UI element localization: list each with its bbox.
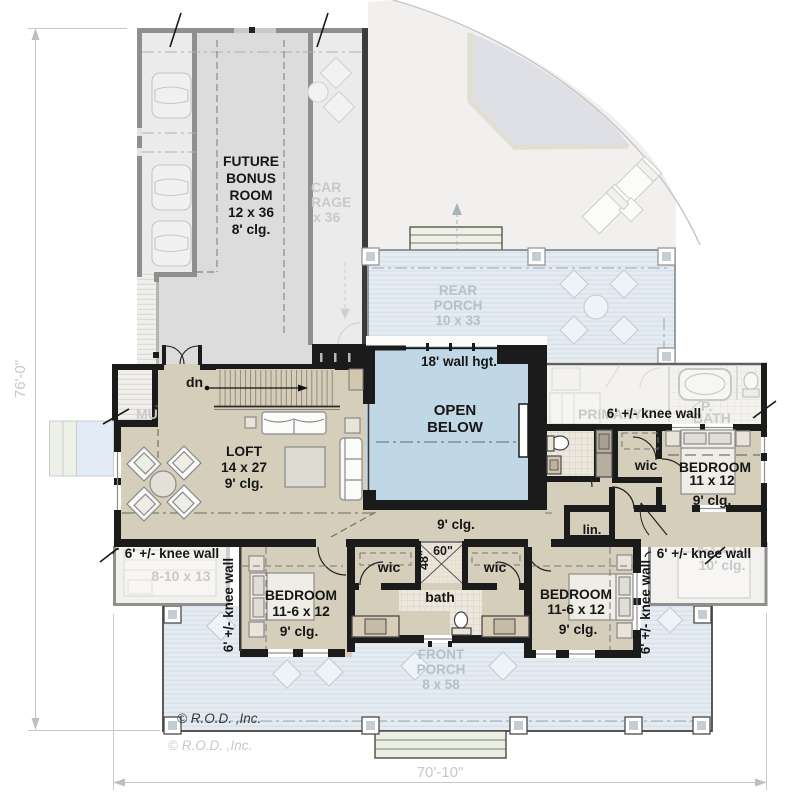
svg-text:wic: wic	[634, 457, 658, 473]
svg-text:14 x 27: 14 x 27	[221, 460, 267, 475]
svg-text:BEDROOM: BEDROOM	[540, 587, 612, 602]
svg-text:70'-10": 70'-10"	[417, 764, 464, 781]
svg-text:dn: dn	[186, 374, 203, 390]
svg-text:76'-0": 76'-0"	[12, 360, 29, 398]
svg-text:9' clg.: 9' clg.	[225, 476, 264, 491]
svg-text:wic: wic	[483, 559, 507, 575]
svg-text:OPEN: OPEN	[434, 402, 477, 419]
svg-text:LOFT: LOFT	[226, 444, 263, 459]
svg-text:8 x 58: 8 x 58	[422, 677, 460, 692]
svg-text:RAGE: RAGE	[311, 194, 351, 210]
svg-text:BEDROOM: BEDROOM	[265, 588, 337, 603]
svg-text:48": 48"	[417, 550, 431, 570]
svg-text:9' clg.: 9' clg.	[280, 624, 319, 639]
svg-text:FUTURE: FUTURE	[223, 154, 279, 169]
svg-text:6' +/- knee wall: 6' +/- knee wall	[221, 558, 236, 652]
svg-text:6' +/- knee wall: 6' +/- knee wall	[657, 546, 751, 561]
svg-text:wic: wic	[377, 559, 401, 575]
svg-text:6' +/- knee wall: 6' +/- knee wall	[125, 546, 219, 561]
svg-text:12 x 36: 12 x 36	[228, 205, 274, 220]
svg-text:© R.O.D. ,Inc.: © R.O.D. ,Inc.	[177, 711, 261, 726]
svg-text:lin.: lin.	[583, 522, 602, 537]
svg-text:60": 60"	[433, 544, 453, 558]
svg-text:11-6 x 12: 11-6 x 12	[272, 604, 330, 619]
svg-text:ROOM: ROOM	[230, 188, 273, 203]
svg-text:BELOW: BELOW	[427, 419, 484, 436]
svg-text:6' +/- knee wall: 6' +/- knee wall	[638, 560, 653, 654]
svg-text:CAR: CAR	[311, 179, 341, 195]
svg-text:8' clg.: 8' clg.	[232, 222, 271, 237]
svg-text:11 x 12: 11 x 12	[689, 473, 735, 488]
svg-text:REAR: REAR	[439, 283, 478, 298]
svg-text:MU: MU	[136, 406, 158, 422]
svg-text:PORCH: PORCH	[434, 298, 483, 313]
svg-text:11-6 x 12: 11-6 x 12	[547, 602, 605, 617]
svg-text:FRONT: FRONT	[418, 647, 465, 662]
svg-text:8-10 x 13: 8-10 x 13	[151, 568, 210, 584]
svg-text:6' +/- knee wall: 6' +/- knee wall	[607, 406, 701, 421]
svg-text:PORCH: PORCH	[417, 662, 466, 677]
svg-text:x 36: x 36	[313, 209, 340, 225]
svg-text:18' wall hgt.: 18' wall hgt.	[421, 354, 497, 369]
svg-text:9' clg.: 9' clg.	[559, 622, 598, 637]
svg-text:9' clg.: 9' clg.	[437, 517, 475, 532]
svg-text:© R.O.D. ,Inc.: © R.O.D. ,Inc.	[168, 738, 252, 753]
svg-text:9' clg.: 9' clg.	[693, 493, 732, 508]
svg-text:BONUS: BONUS	[226, 171, 276, 186]
svg-text:10 x 33: 10 x 33	[435, 313, 481, 328]
svg-text:bath: bath	[425, 589, 455, 605]
